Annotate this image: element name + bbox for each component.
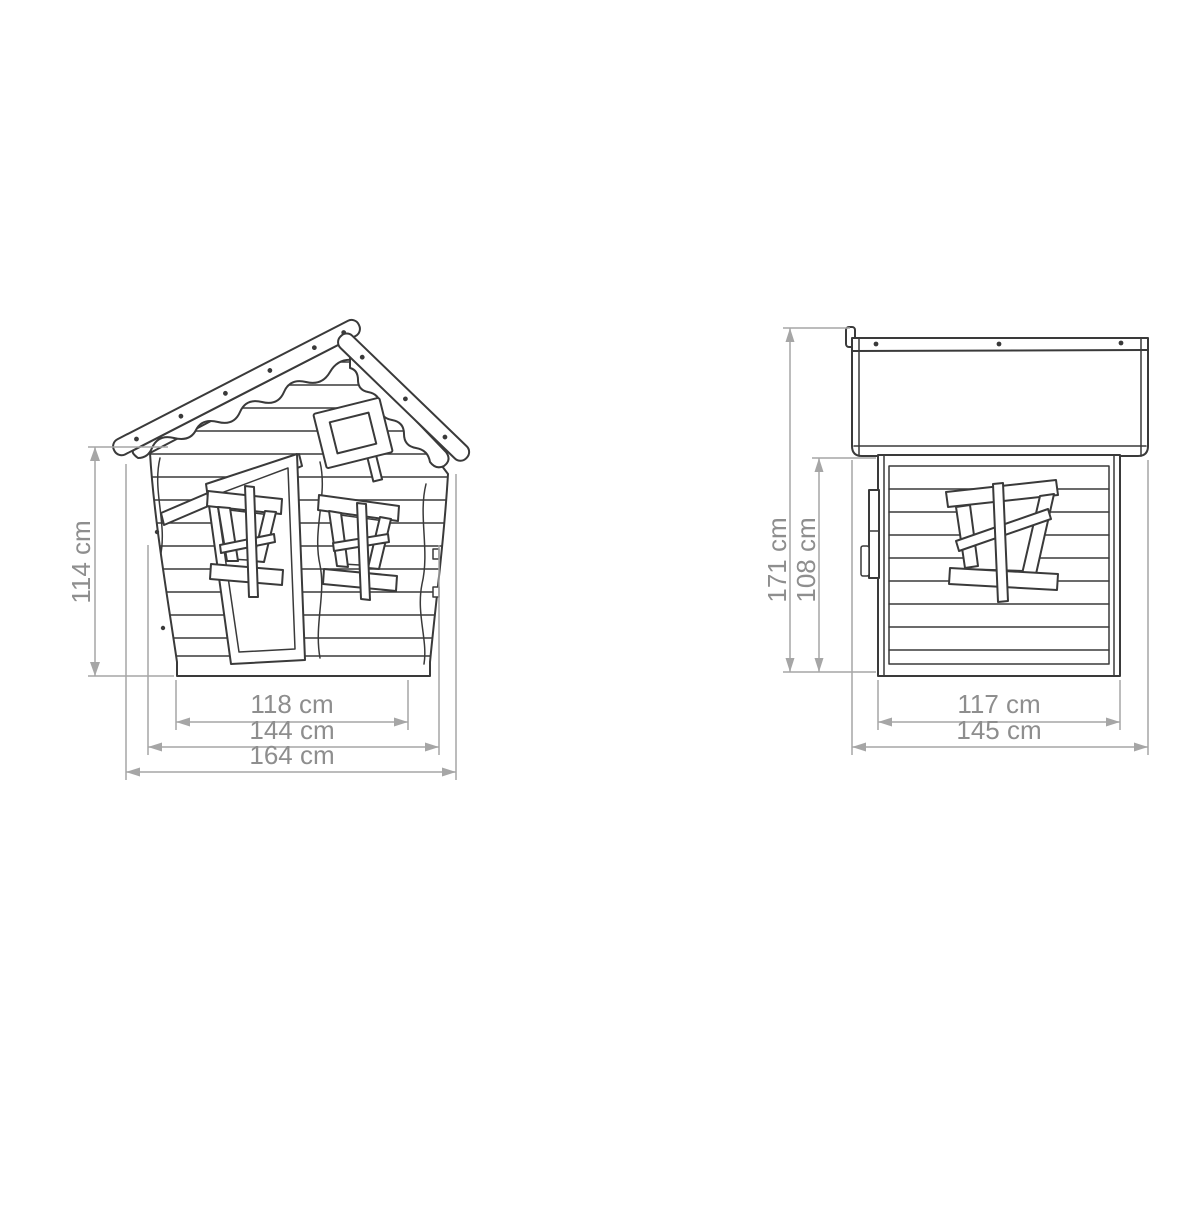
drawing-canvas: 114 cm 118 cm 144 cm 164 cm: [0, 0, 1200, 1200]
side-window: [946, 480, 1058, 602]
dim-label-front-height: 114 cm: [66, 520, 96, 603]
edge-fitting: [433, 587, 439, 597]
edge-fitting: [433, 549, 439, 559]
dim-label-side-overall-height: 171 cm: [762, 517, 792, 602]
dim-label-side-roof-depth: 145 cm: [956, 715, 1041, 745]
roof-panel: [852, 338, 1148, 456]
roof-screw: [997, 342, 1002, 347]
side-view: [846, 327, 1148, 676]
dim-label-side-wall-height: 108 cm: [791, 517, 821, 602]
front-view: [110, 317, 472, 676]
side-roof: [846, 327, 1148, 456]
ridge-board-line: [852, 350, 1148, 351]
playhouse-dimension-drawing: 114 cm 118 cm 144 cm 164 cm: [0, 0, 1200, 1200]
roof-screw: [874, 342, 879, 347]
hinge-screw-dot: [161, 626, 165, 630]
dim-label-front-overall-width: 164 cm: [249, 740, 334, 770]
roof-screw: [1119, 341, 1124, 346]
side-door-edge: [861, 490, 879, 578]
door-edge-board: [869, 490, 879, 578]
hinge-screw-dot: [155, 530, 159, 534]
door-handle: [861, 546, 869, 576]
